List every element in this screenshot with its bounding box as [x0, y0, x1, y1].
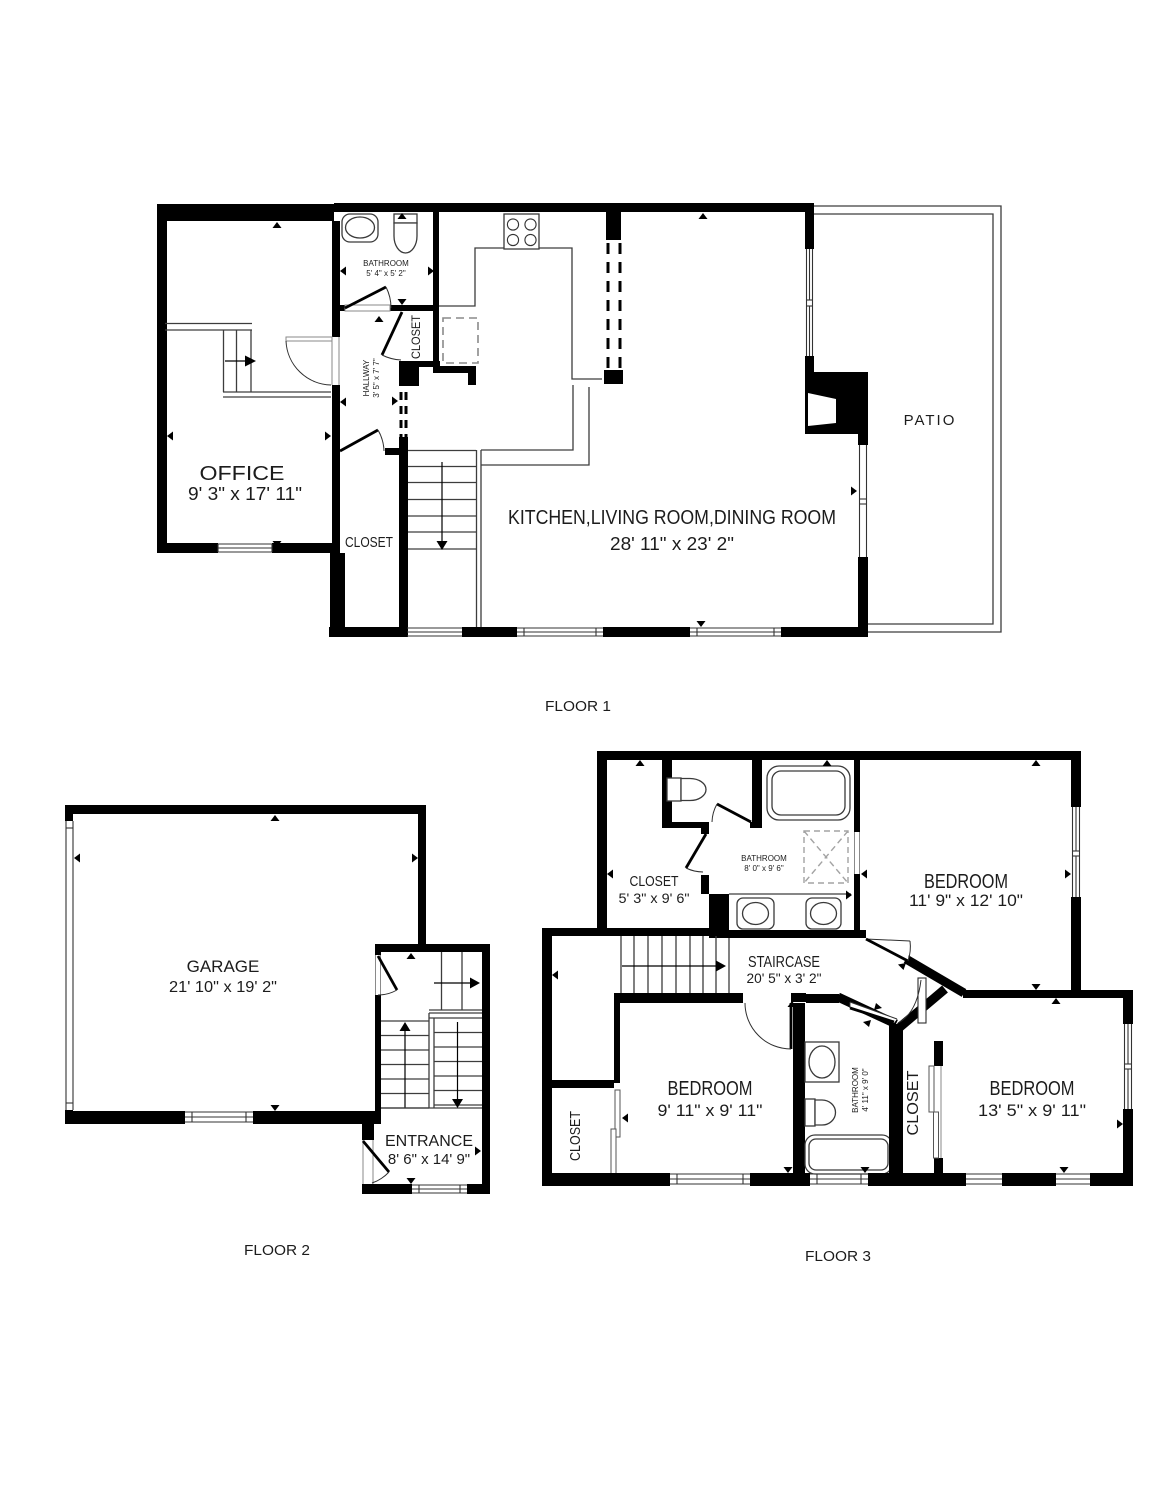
- svg-text:9' 3" x 17' 11": 9' 3" x 17' 11": [188, 484, 302, 504]
- svg-text:13' 5" x 9' 11": 13' 5" x 9' 11": [978, 1101, 1086, 1120]
- svg-text:5' 4" x 5' 2": 5' 4" x 5' 2": [366, 269, 406, 278]
- svg-text:28' 11" x 23' 2": 28' 11" x 23' 2": [610, 534, 734, 554]
- svg-text:FLOOR 1: FLOOR 1: [545, 698, 611, 715]
- svg-text:OFFICE: OFFICE: [200, 463, 285, 485]
- svg-text:ENTRANCE: ENTRANCE: [385, 1133, 473, 1150]
- svg-text:20' 5" x 3' 2": 20' 5" x 3' 2": [747, 970, 822, 986]
- svg-text:CLOSET: CLOSET: [905, 1070, 922, 1135]
- svg-text:GARAGE: GARAGE: [187, 957, 260, 976]
- svg-text:CLOSET: CLOSET: [567, 1111, 584, 1161]
- svg-text:CLOSET: CLOSET: [345, 534, 393, 551]
- svg-text:4' 11" x 9' 0": 4' 11" x 9' 0": [861, 1068, 870, 1111]
- svg-text:FLOOR 3: FLOOR 3: [805, 1248, 871, 1265]
- svg-text:PATIO: PATIO: [904, 412, 957, 429]
- svg-text:STAIRCASE: STAIRCASE: [748, 954, 820, 971]
- svg-text:9' 11" x 9' 11": 9' 11" x 9' 11": [658, 1101, 763, 1120]
- svg-text:BATHROOM: BATHROOM: [363, 259, 409, 268]
- svg-text:8' 6" x 14' 9": 8' 6" x 14' 9": [388, 1151, 470, 1168]
- svg-text:11' 9" x 12' 10": 11' 9" x 12' 10": [909, 891, 1023, 910]
- svg-text:BATHROOM: BATHROOM: [741, 854, 787, 863]
- svg-text:BEDROOM: BEDROOM: [924, 871, 1008, 893]
- svg-text:3' 5" x 7' 7": 3' 5" x 7' 7": [372, 358, 381, 398]
- svg-text:KITCHEN,LIVING ROOM,DINING ROO: KITCHEN,LIVING ROOM,DINING ROOM: [508, 507, 836, 529]
- svg-text:BEDROOM: BEDROOM: [990, 1078, 1075, 1100]
- svg-text:HALLWAY: HALLWAY: [362, 359, 371, 396]
- svg-text:21' 10" x 19' 2": 21' 10" x 19' 2": [169, 979, 277, 996]
- svg-text:8' 0" x 9' 6": 8' 0" x 9' 6": [744, 864, 784, 873]
- svg-text:BEDROOM: BEDROOM: [668, 1078, 753, 1100]
- svg-text:FLOOR 2: FLOOR 2: [244, 1242, 310, 1259]
- svg-text:CLOSET: CLOSET: [409, 314, 423, 359]
- svg-text:5' 3" x 9' 6": 5' 3" x 9' 6": [619, 890, 690, 906]
- svg-text:BATHROOM: BATHROOM: [851, 1067, 860, 1113]
- svg-text:CLOSET: CLOSET: [630, 873, 679, 890]
